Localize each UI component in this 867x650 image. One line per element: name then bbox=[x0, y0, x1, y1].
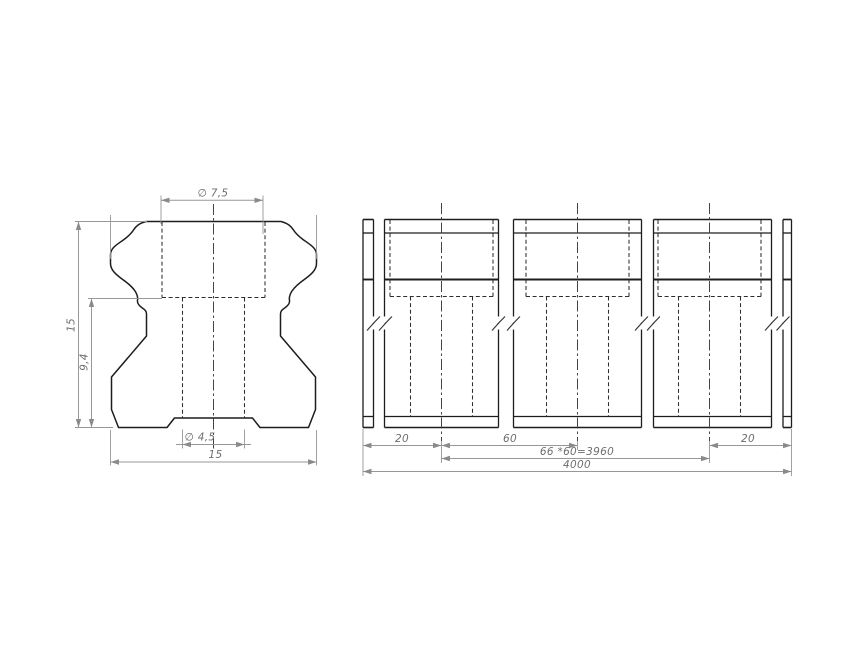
end-strip-right bbox=[783, 220, 792, 428]
drawing-sheet: ∅ 7,5 15 9,4 ∅ 4,5 bbox=[0, 0, 867, 650]
dim-partial-height: 9,4 bbox=[79, 299, 163, 428]
dim-end-offset-right-label: 20 bbox=[741, 433, 755, 445]
dim-hole-diameter-label: ∅ 4,5 bbox=[185, 432, 216, 444]
dim-overall-width-label: 15 bbox=[209, 449, 223, 461]
dim-pitch: 60 bbox=[442, 433, 578, 446]
end-strip-left bbox=[363, 220, 374, 428]
break-mark bbox=[765, 317, 778, 331]
side-view: 20 60 20 66 *60=3960 4000 bbox=[363, 203, 792, 476]
dim-top-diameter: ∅ 7,5 bbox=[161, 188, 263, 235]
break-marks bbox=[367, 317, 790, 331]
break-mark bbox=[635, 317, 648, 331]
module-2 bbox=[514, 203, 642, 441]
dim-pitch-label: 60 bbox=[503, 433, 517, 445]
dim-overall-height-label: 15 bbox=[66, 318, 78, 332]
dim-partial-height-label: 9,4 bbox=[79, 353, 91, 371]
dim-pitch-total-label: 66 *60=3960 bbox=[540, 446, 614, 458]
break-mark bbox=[367, 317, 380, 331]
dim-overall-length: 4000 bbox=[363, 459, 792, 472]
dim-top-diameter-label: ∅ 7,5 bbox=[198, 188, 229, 200]
break-mark bbox=[379, 317, 392, 331]
module-3 bbox=[654, 203, 772, 441]
break-mark bbox=[647, 317, 660, 331]
dim-end-offset-left: 20 bbox=[363, 433, 442, 446]
technical-drawing: ∅ 7,5 15 9,4 ∅ 4,5 bbox=[0, 0, 867, 650]
break-mark bbox=[492, 317, 505, 331]
dim-end-offset-left-label: 20 bbox=[395, 433, 409, 445]
dim-overall-length-label: 4000 bbox=[563, 459, 591, 471]
cross-section-view: ∅ 7,5 15 9,4 ∅ 4,5 bbox=[66, 188, 317, 466]
module-1 bbox=[385, 203, 499, 441]
break-mark bbox=[777, 317, 790, 331]
dim-end-offset-right: 20 bbox=[710, 433, 792, 446]
break-mark bbox=[507, 317, 520, 331]
dim-pitch-total: 66 *60=3960 bbox=[442, 446, 710, 459]
dim-overall-height: 15 bbox=[66, 222, 148, 428]
